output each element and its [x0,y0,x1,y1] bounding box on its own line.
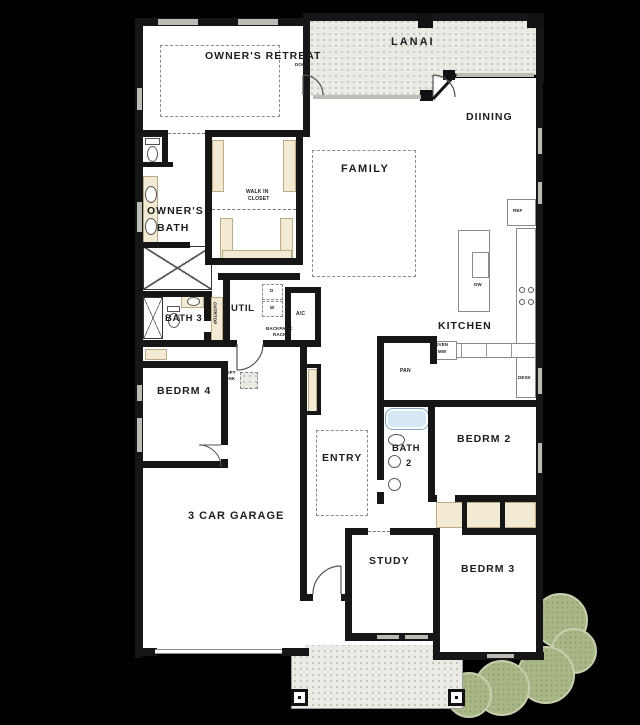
window [538,128,542,154]
cooktop-burner [519,299,525,305]
wic-shelf [212,140,224,192]
room-label-owners-bath-2: BATH [157,223,189,234]
cooktop-burner [528,287,534,293]
shower-bath3 [143,297,163,339]
study-cased-opening [368,531,390,532]
wall [377,492,384,504]
counter-right [516,228,536,398]
label-washer: W [270,306,274,311]
porch-post-inner [451,692,462,703]
window [137,88,142,110]
window [238,19,278,25]
window-desk [538,368,542,394]
wall [282,648,309,656]
bedroom-closet-band [436,502,536,528]
label-pan: PAN [400,369,411,374]
room-label-kitchen: KITCHEN [438,321,492,332]
wall [135,461,228,468]
wall [135,340,237,347]
wall [300,594,313,601]
room-label-owners-retreat: OWNER'S RETREAT [205,51,321,62]
label-opt-sink-1: OPT [226,371,236,376]
wall [205,133,212,262]
wall [341,594,352,601]
wall [135,291,212,297]
floor-plan: OWNER'S RETREAT DOOR LANAI DIINING FAMIL… [0,0,640,725]
wall [315,287,321,343]
entry-ceiling-detail [316,430,368,516]
room-label-entry: ENTRY [322,453,362,464]
wall [428,407,435,502]
wall [223,280,230,342]
label-dw: DW [474,283,482,288]
porch-post-core [455,696,458,699]
garage-door [155,649,282,654]
wall [205,258,303,265]
toilet-owners [145,138,160,145]
room-label-garage: 3 CAR GARAGE [188,511,284,522]
room-label-lanai: LANAI [391,37,435,48]
wall [303,18,310,137]
sink-owners [145,218,157,235]
window [538,443,542,473]
wall [204,291,211,321]
lanai-post [420,90,433,101]
porch-post [448,689,465,706]
porch-post-inner [294,692,305,703]
wall [462,502,467,528]
wall [345,528,368,535]
wall [300,345,307,598]
linen-shelf [145,349,167,360]
wall [428,400,543,407]
sink2-bath2 [388,478,401,491]
sink-owners [145,186,157,203]
wall [500,502,505,528]
wall [135,18,143,658]
label-ac: A/C [296,312,305,317]
wall [455,495,543,502]
porch-post [291,689,308,706]
wall [296,133,303,262]
wall [205,130,310,137]
label-dryer: D [270,289,273,294]
label-cntrtop: CNTRTOP [212,302,217,324]
wic-divider [212,209,296,210]
window [137,202,142,232]
dishwasher [472,252,489,278]
window [158,19,198,25]
lanai-post [527,13,543,28]
wall [377,336,384,407]
window [377,635,399,639]
lanai-window [313,95,421,99]
wall [430,336,437,364]
wall [377,400,435,407]
entry-closet [308,369,317,413]
wall [462,528,543,535]
room-label-bath3: BATH 3 [165,314,202,324]
bath-door-opening [168,133,205,134]
room-label-dining: DIINING [466,112,513,123]
label-desk: DESK [518,376,531,381]
room-label-wic-2: CLOSET [248,197,269,202]
label-mw: MW [438,350,446,355]
wall [307,411,321,415]
room-label-family: FAMILY [341,164,389,175]
wall [377,407,384,480]
toilet-owners-bowl [147,146,158,162]
window [538,182,542,204]
label-opt-sink-2: SINK [224,377,235,382]
bathtub-bath2 [385,408,429,430]
label-backpack-1: BACKPACK [266,327,292,332]
wall [433,535,440,660]
label-ref: REF [513,209,522,214]
lanai-window [456,73,534,77]
room-label-util: UTIL [231,304,255,314]
room-label-wic-1: WALK IN [246,190,269,195]
wall [135,162,173,167]
wall [317,364,321,415]
label-door: DOOR [295,63,309,68]
window [487,654,514,658]
wall [135,242,190,248]
room-label-bedrm2: BEDRM 2 [457,434,511,445]
wall [428,495,437,502]
cooktop-burner [519,287,525,293]
label-backpack-2: RACK [273,333,286,338]
wall [135,361,228,368]
room-label-owners-bath-1: OWNER'S [147,206,204,217]
lanai-post [443,70,455,80]
wall [218,273,300,280]
room-label-bedrm4: BEDRM 4 [157,386,211,397]
porch-post-core [298,696,301,699]
window [137,418,142,452]
room-label-bath2-1: BATH [392,444,420,454]
label-oven: OVEN [435,343,448,348]
lanai-post [418,13,433,28]
sink-bath3 [187,297,200,306]
opt-sink-box [240,372,258,389]
shower-owners [143,246,212,290]
wic-shelf [283,140,296,192]
wall [135,648,157,656]
room-label-bedrm3: BEDRM 3 [461,564,515,575]
cooktop-burner [528,299,534,305]
window [137,385,142,401]
room-label-study: STUDY [369,556,410,567]
room-label-bath2-2: 2 [406,459,412,469]
toilet-bath2 [388,455,401,468]
window [405,635,428,639]
wall [345,535,352,641]
toilet-bath3 [167,306,180,312]
wall [390,528,437,535]
wall [263,340,321,347]
wall [377,336,437,343]
